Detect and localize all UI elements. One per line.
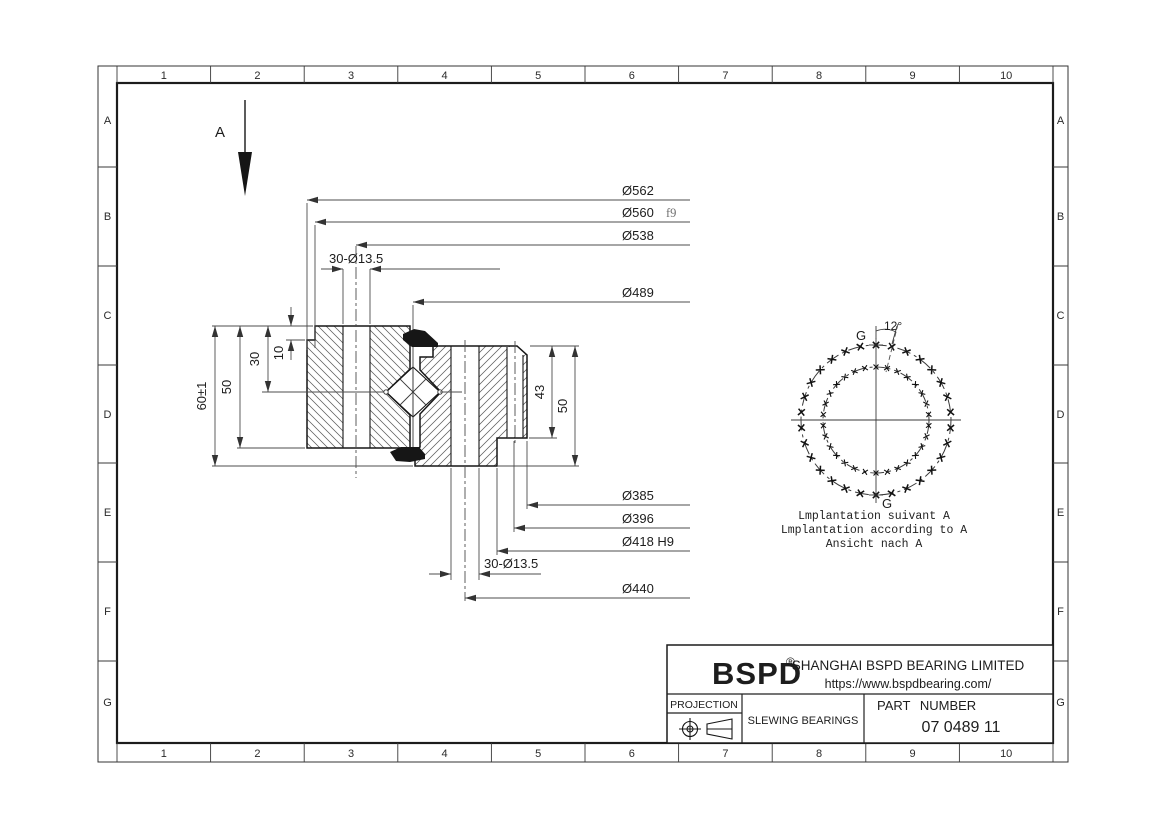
part-number-label: PART NUMBER xyxy=(877,698,976,713)
grid-col-label: 5 xyxy=(535,70,541,82)
grid-col-label: 10 xyxy=(1000,70,1012,82)
arrow-head xyxy=(238,152,252,196)
caption-french: Lmplantation suivant A xyxy=(798,510,950,523)
grid-row-label: E xyxy=(104,507,111,519)
bolt-hole-mark xyxy=(935,377,946,388)
grid-row-label: B xyxy=(1057,211,1064,223)
dim-height-outer-ring: 50 xyxy=(219,380,234,394)
company-name: SHANGHAI BSPD BEARING LIMITED xyxy=(792,658,1025,673)
bolt-hole-mark xyxy=(901,483,913,495)
bolt-hole-mark xyxy=(882,363,892,373)
bolt-hole-mark xyxy=(922,432,931,441)
engineering-drawing-canvas: 1 2 3 4 5 6 7 8 9 10 1 2 3 4 5 6 7 8 9 1… xyxy=(0,0,1170,827)
grid-col-label: 10 xyxy=(1000,748,1012,760)
dim-height-total: 60±1 xyxy=(194,382,209,411)
dim-od-spigot-fit: f9 xyxy=(666,206,676,220)
bolt-hole-mark xyxy=(915,354,925,364)
bolt-hole-mark xyxy=(854,487,866,499)
bolt-hole-mark xyxy=(840,483,852,495)
bolt-hole-mark xyxy=(941,391,953,403)
bolt-hole-mark xyxy=(882,467,892,477)
product-type: SLEWING BEARINGS xyxy=(748,715,859,727)
grid-col-label: 4 xyxy=(442,748,448,760)
bolt-hole-mark xyxy=(821,432,830,441)
grid-col-label: 9 xyxy=(910,70,916,82)
bolt-hole-mark xyxy=(860,467,870,477)
bolt-hole-mark xyxy=(827,354,837,364)
grid-col-label: 7 xyxy=(722,70,728,82)
bolt-hole-mark xyxy=(918,389,927,398)
dim-height-inner-ring: 50 xyxy=(555,399,570,413)
grid-numbers-bottom: 1 2 3 4 5 6 7 8 9 10 xyxy=(161,748,1013,760)
bolt-hole-mark xyxy=(850,367,859,376)
grid-col-label: 2 xyxy=(254,748,260,760)
grid-col-label: 3 xyxy=(348,70,354,82)
bolt-hole-mark xyxy=(827,476,837,486)
bolt-hole-mark xyxy=(826,442,835,451)
grid-row-label: D xyxy=(104,409,112,421)
top-diameter-callouts: Ø562 Ø560 f9 Ø538 Ø489 30-Ø13.5 xyxy=(307,183,690,350)
bolt-hole-mark xyxy=(912,381,919,388)
bolt-hole-mark xyxy=(806,452,817,463)
view-arrow-label: A xyxy=(215,124,225,141)
grid-row-label: D xyxy=(1057,409,1065,421)
dim-bore-step: Ø396 xyxy=(622,511,654,526)
bolt-hole-mark xyxy=(922,399,931,408)
grid-col-label: 2 xyxy=(254,70,260,82)
bolt-hole-mark xyxy=(918,442,927,451)
grid-row-label: F xyxy=(104,606,111,618)
grid-col-label: 9 xyxy=(910,748,916,760)
grid-row-label: G xyxy=(103,697,112,709)
bolt-hole-mark xyxy=(850,464,859,473)
bolt-hole-mark xyxy=(935,452,946,463)
bolt-hole-mark xyxy=(941,437,953,449)
lower-seal xyxy=(390,447,425,462)
grid-col-label: 6 xyxy=(629,70,635,82)
grid-row-dividers xyxy=(98,167,1068,661)
grid-row-label: B xyxy=(104,211,111,223)
grid-col-label: 7 xyxy=(722,748,728,760)
grid-row-label: E xyxy=(1057,507,1064,519)
grid-col-label: 4 xyxy=(442,70,448,82)
grid-col-label: 1 xyxy=(161,70,167,82)
dim-bore: Ø385 xyxy=(622,488,654,503)
bolt-hole-mark xyxy=(893,367,902,376)
g-mark-top-label: G xyxy=(856,328,866,343)
dim-outer-bolt-holes: 30-Ø13.5 xyxy=(329,251,383,266)
grid-row-label: A xyxy=(1057,115,1065,127)
dim-inner-bolt-circle: Ø440 xyxy=(622,581,654,596)
bolt-hole-mark xyxy=(826,389,835,398)
bolt-hole-mark xyxy=(799,391,811,403)
grid-row-label: F xyxy=(1057,606,1064,618)
dim-inner-step-depth: 43 xyxy=(532,385,547,399)
grid-row-label: C xyxy=(1057,310,1065,322)
grid-col-label: 5 xyxy=(535,748,541,760)
grid-row-label: A xyxy=(104,115,112,127)
grid-col-label: 6 xyxy=(629,748,635,760)
grid-col-label: 8 xyxy=(816,70,822,82)
bolt-hole-mark xyxy=(893,464,902,473)
bolt-hole-mark xyxy=(821,399,830,408)
dim-spigot-height: 10 xyxy=(271,346,286,360)
drawing-sheet: 1 2 3 4 5 6 7 8 9 10 1 2 3 4 5 6 7 8 9 1… xyxy=(0,0,1170,827)
inner-border xyxy=(117,83,1053,743)
caption-english: Lmplantation according to A xyxy=(781,524,967,537)
dim-outer-bolt-circle: Ø538 xyxy=(622,228,654,243)
grid-letters-right: A B C D E F G xyxy=(1056,115,1065,709)
dim-od-flange: Ø562 xyxy=(622,183,654,198)
dim-raceway: Ø489 xyxy=(622,285,654,300)
dim-bore-recess: Ø418 H9 xyxy=(622,534,674,549)
angle-label: 12° xyxy=(884,319,902,333)
g-mark-bottom-label: G xyxy=(882,496,892,511)
grid-col-label: 3 xyxy=(348,748,354,760)
view-direction-arrow: A xyxy=(215,100,252,196)
bolt-hole-mark xyxy=(944,406,957,419)
bolt-hole-mark xyxy=(901,346,913,358)
grid-numbers-top: 1 2 3 4 5 6 7 8 9 10 xyxy=(161,70,1013,82)
roller-pivot-left xyxy=(384,390,388,394)
bolt-hole-mark xyxy=(860,363,870,373)
caption-german: Ansicht nach A xyxy=(826,538,923,551)
bolt-hole-mark xyxy=(806,377,817,388)
projection-label: PROJECTION xyxy=(670,699,738,711)
grid-letters-left: A B C D E F G xyxy=(103,115,112,709)
dim-raceway-depth: 30 xyxy=(247,352,262,366)
bolt-pattern-view: 12° G G Lmplantation suivant A Lmplantat… xyxy=(781,319,967,551)
view-captions: Lmplantation suivant A Lmplantation acco… xyxy=(781,510,967,551)
part-number-value: 07 0489 11 xyxy=(922,719,1001,736)
bolt-hole-mark xyxy=(799,437,811,449)
grid-col-label: 8 xyxy=(816,748,822,760)
dim-inner-bolt-holes: 30-Ø13.5 xyxy=(484,556,538,571)
company-website: https://www.bspdbearing.com/ xyxy=(825,677,992,691)
bearing-section-view xyxy=(307,246,527,601)
outer-ring-bolt-hole xyxy=(343,326,370,448)
bolt-hole-mark xyxy=(840,346,852,358)
dim-od-spigot: Ø560 xyxy=(622,205,654,220)
grid-row-label: C xyxy=(104,310,112,322)
grid-row-label: G xyxy=(1056,697,1065,709)
title-block: BSPD ® SHANGHAI BSPD BEARING LIMITED htt… xyxy=(667,645,1053,743)
bolt-hole-mark xyxy=(915,476,925,486)
grid-col-label: 1 xyxy=(161,748,167,760)
